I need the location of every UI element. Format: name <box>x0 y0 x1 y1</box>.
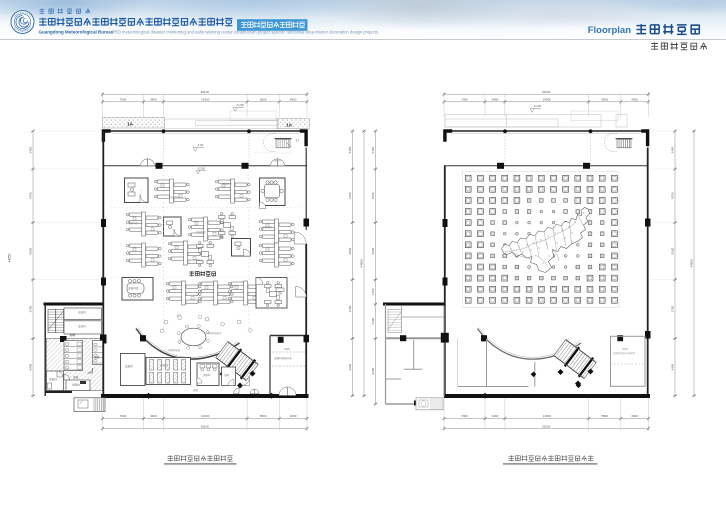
svg-text:9600: 9600 <box>671 247 675 254</box>
svg-text:-5.000: -5.000 <box>197 166 205 170</box>
svg-text:9400: 9400 <box>371 367 375 374</box>
svg-text:9700: 9700 <box>371 192 375 199</box>
svg-text:-5.05: -5.05 <box>197 143 204 147</box>
svg-text:-5.200: -5.200 <box>533 104 541 108</box>
svg-text:9600: 9600 <box>348 247 352 254</box>
svg-text:5500: 5500 <box>601 414 608 418</box>
svg-text:4600: 4600 <box>631 414 638 418</box>
svg-text:5500: 5500 <box>260 97 267 101</box>
svg-text:M2024: M2024 <box>274 161 281 163</box>
svg-text:PRD meteorological disaster mo: PRD meteorological disaster monitoring a… <box>112 29 378 34</box>
svg-text:7000: 7000 <box>120 97 127 101</box>
svg-text:1T: 1T <box>296 139 300 143</box>
svg-text:35100: 35100 <box>542 90 551 94</box>
svg-text:6450: 6450 <box>348 146 352 153</box>
svg-text:3400: 3400 <box>492 414 499 418</box>
svg-text:6450: 6450 <box>29 146 33 153</box>
svg-text:4600: 4600 <box>290 97 297 101</box>
svg-text:44850: 44850 <box>360 259 364 268</box>
svg-text:9400: 9400 <box>671 363 675 370</box>
svg-text:2700: 2700 <box>29 305 33 312</box>
svg-text:9400: 9400 <box>29 363 33 370</box>
svg-text:5500: 5500 <box>601 97 608 101</box>
svg-text:7000: 7000 <box>461 414 468 418</box>
svg-text:Floorplan: Floorplan <box>588 25 631 36</box>
svg-text:9600: 9600 <box>371 247 375 254</box>
svg-text:4600: 4600 <box>631 97 638 101</box>
svg-text:3400: 3400 <box>492 97 499 101</box>
svg-text:1A: 1A <box>127 122 134 127</box>
svg-text:▪: ▪ <box>141 189 142 192</box>
svg-text:2700: 2700 <box>671 305 675 312</box>
svg-text:1A: 1A <box>286 123 293 128</box>
svg-text:5500: 5500 <box>260 414 267 418</box>
svg-text:3400: 3400 <box>150 97 157 101</box>
svg-text:35100: 35100 <box>201 90 210 94</box>
svg-text:35100: 35100 <box>542 424 551 428</box>
svg-text:2700: 2700 <box>348 305 352 312</box>
svg-text:7000: 7000 <box>120 414 127 418</box>
svg-text:9700: 9700 <box>671 192 675 199</box>
svg-text:14300: 14300 <box>201 414 210 418</box>
svg-text:6450: 6450 <box>671 146 675 153</box>
svg-text:9700: 9700 <box>29 192 33 199</box>
svg-text:2700: 2700 <box>371 288 375 295</box>
svg-text:9600: 9600 <box>29 247 33 254</box>
svg-text:-5.200: -5.200 <box>236 103 244 107</box>
svg-text:14300: 14300 <box>543 414 552 418</box>
svg-text:6300: 6300 <box>371 317 375 324</box>
svg-text:44850: 44850 <box>8 253 12 262</box>
svg-text:5600: 5600 <box>622 348 628 351</box>
svg-text:3400: 3400 <box>150 414 157 418</box>
svg-text:4600: 4600 <box>290 414 297 418</box>
svg-text:14300: 14300 <box>543 97 552 101</box>
svg-text:Guangdong Meteorological Burea: Guangdong Meteorological Bureau <box>39 30 114 35</box>
svg-text:14300: 14300 <box>201 97 210 101</box>
svg-text:7000: 7000 <box>461 97 468 101</box>
svg-text:9700: 9700 <box>348 192 352 199</box>
svg-text:35100: 35100 <box>201 424 210 428</box>
svg-text:6450: 6450 <box>371 146 375 153</box>
svg-text:5600: 5600 <box>284 348 290 351</box>
svg-text:44850: 44850 <box>690 259 694 268</box>
svg-text:9400: 9400 <box>348 363 352 370</box>
